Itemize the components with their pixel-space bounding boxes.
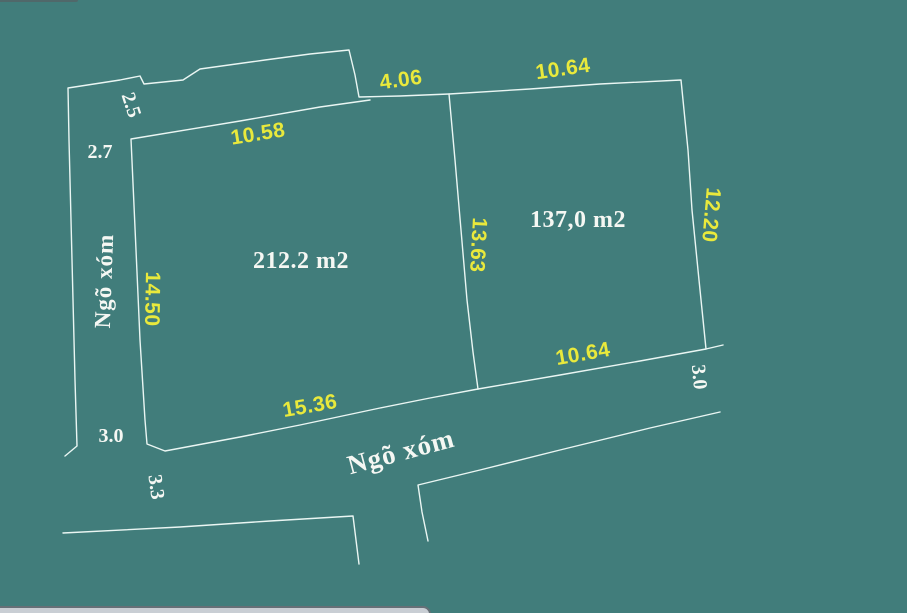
- dimension-label: 4.06: [378, 67, 423, 94]
- offset-label: 3.3: [144, 473, 167, 501]
- road-name-label: Ngõ xóm: [91, 233, 117, 328]
- plot-map: 10.584.0610.6414.5013.6312.2015.3610.642…: [0, 0, 907, 613]
- window-edge-bottom-bar: [0, 606, 431, 613]
- window-edge-top-left: [0, 0, 78, 2]
- offset-label: 2.7: [88, 142, 113, 162]
- offset-label: 3.0: [99, 426, 124, 446]
- outer-boundary-line: [65, 50, 723, 456]
- area-label: 212.2 m2: [253, 249, 349, 273]
- dimension-label: 12.20: [698, 187, 724, 244]
- lower-road-edge-line: [418, 412, 720, 541]
- dimension-label: 13.63: [466, 217, 490, 273]
- dimension-label: 14.50: [141, 271, 163, 326]
- offset-label: 3.0: [688, 364, 710, 391]
- lower-left-block-line: [63, 516, 359, 564]
- area-label: 137,0 m2: [530, 208, 626, 232]
